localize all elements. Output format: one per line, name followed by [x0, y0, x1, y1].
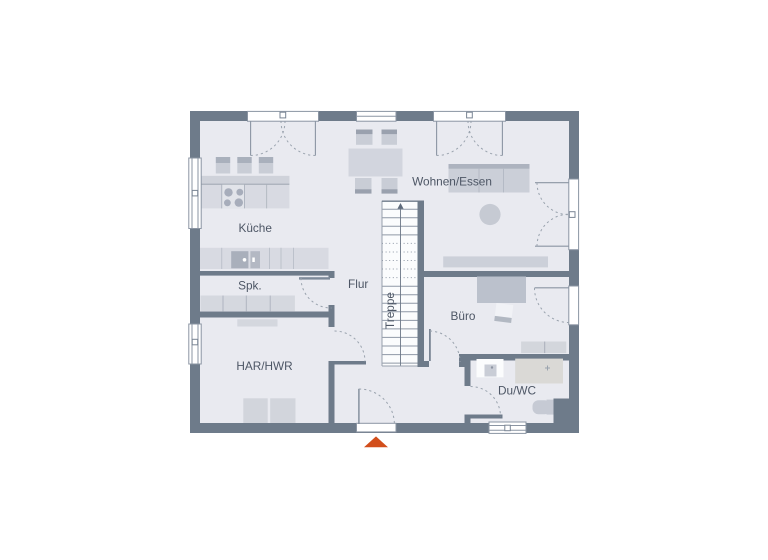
svg-text:Spk.: Spk.: [238, 279, 262, 293]
svg-text:Treppe: Treppe: [383, 292, 397, 329]
svg-text:Wohnen/Essen: Wohnen/Essen: [412, 175, 492, 189]
svg-text:Küche: Küche: [238, 221, 272, 235]
svg-text:HAR/HWR: HAR/HWR: [236, 359, 292, 373]
svg-text:Du/WC: Du/WC: [498, 384, 536, 398]
svg-text:Büro: Büro: [451, 309, 476, 323]
svg-text:Flur: Flur: [348, 277, 368, 291]
